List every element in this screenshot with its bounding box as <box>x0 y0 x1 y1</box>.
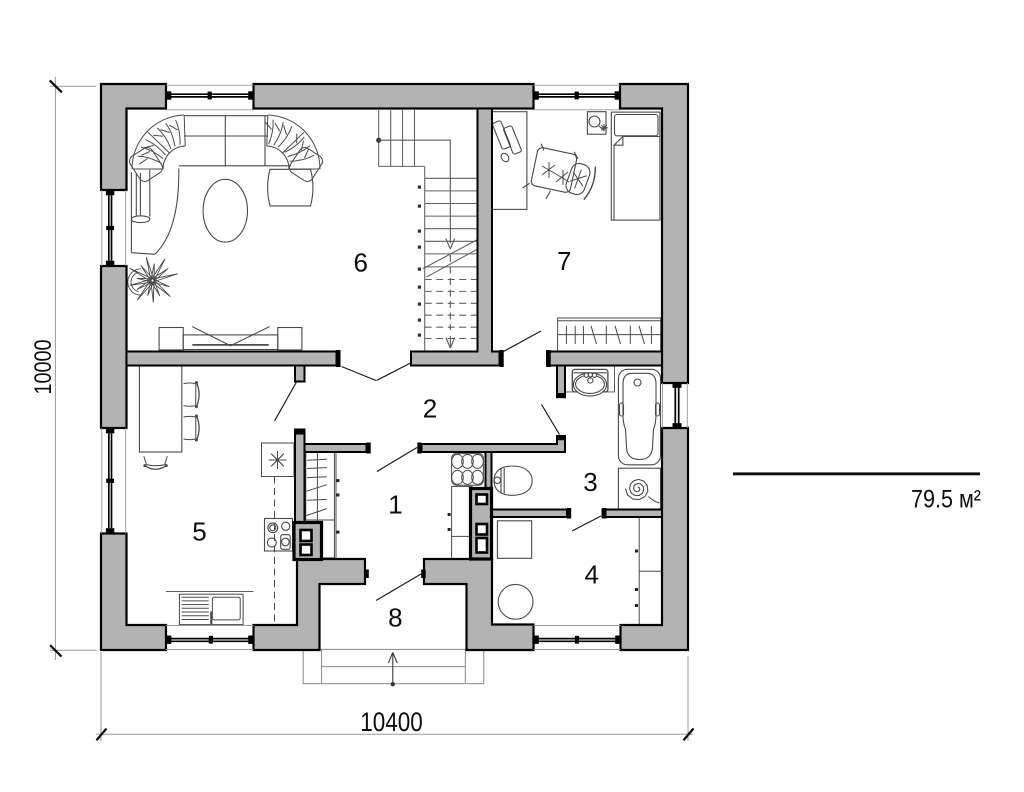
svg-text:3: 3 <box>583 467 597 497</box>
svg-text:2: 2 <box>423 393 437 423</box>
svg-text:10000: 10000 <box>30 340 57 395</box>
svg-text:6: 6 <box>353 248 367 278</box>
svg-text:5: 5 <box>192 517 206 547</box>
svg-text:79.5 м²: 79.5 м² <box>911 486 981 514</box>
svg-text:4: 4 <box>584 559 598 589</box>
svg-text:1: 1 <box>388 489 402 519</box>
svg-text:10400: 10400 <box>360 707 423 737</box>
svg-text:8: 8 <box>388 602 402 632</box>
svg-text:7: 7 <box>557 246 571 276</box>
